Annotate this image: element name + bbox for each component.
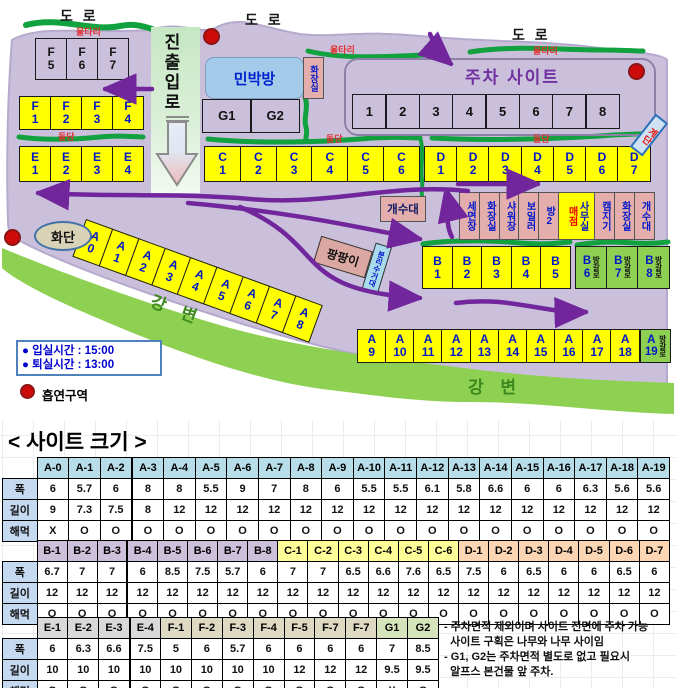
col-header-C-5: C-5	[398, 541, 428, 562]
check-in-out-legend: ● 입실시간 : 15:00 ● 퇴실시간 : 13:00	[16, 340, 162, 376]
site-A13: A13	[470, 329, 500, 363]
cell-G2-hammock: O	[408, 681, 439, 688]
bungalow-tag: 방갈로	[623, 256, 631, 279]
col-header-D-3: D-3	[519, 541, 549, 562]
cell-C-1-width: 7	[278, 562, 308, 583]
cell-A-9-hammock: O	[322, 521, 354, 542]
campsite-map: 진출입로 도 로 도 로 도 로 울타리 울타리 울타리 돌담 돌담 돌담 민박…	[0, 0, 676, 420]
row-label-길이: 길이	[3, 583, 38, 604]
cell-A-12-width: 6.1	[417, 479, 449, 500]
cell-A-19-width: 5.6	[638, 479, 670, 500]
facility-방2: 방2	[538, 192, 559, 240]
cell-F-3-width: 5.7	[222, 639, 253, 660]
site-A18: A18	[610, 329, 640, 363]
site-A9: A9	[357, 329, 387, 363]
col-header-A-5: A-5	[195, 458, 227, 479]
note-line: - 주차면적 제외이며 사이트 전면에 주차 가능	[444, 620, 676, 635]
col-header-B-7: B-7	[218, 541, 248, 562]
site-E4: E4	[112, 146, 144, 182]
cell-F-7-hammock: O	[315, 681, 346, 688]
cell-F-4-hammock: O	[253, 681, 284, 688]
facility-화장실: 화장실	[479, 192, 500, 240]
col-header-A-11: A-11	[385, 458, 417, 479]
cell-D-4-length: 12	[549, 583, 579, 604]
flowerbed-oval: 화단	[34, 221, 92, 251]
note-line: - G1, G2는 주차면적 별도로 없고 필요시	[444, 650, 676, 665]
cell-B-1-length: 12	[37, 583, 67, 604]
note-line: 사이트 구획은 나무와 나무 사이임	[444, 635, 676, 650]
cell-D-3-length: 12	[519, 583, 549, 604]
cell-B-8-length: 12	[248, 583, 278, 604]
fence-label-2: 울타리	[330, 43, 355, 56]
site-B4: B4	[511, 246, 542, 289]
cell-A-10-width: 5.5	[353, 479, 385, 500]
site-B1: B1	[422, 246, 453, 289]
cell-A-2-length: 7.5	[100, 500, 132, 521]
col-header-F-1: F-1	[161, 618, 192, 639]
fence-label-1: 울타리	[76, 25, 101, 38]
cell-F-3-hammock: O	[222, 681, 253, 688]
col-header-A-4: A-4	[164, 458, 196, 479]
cell-E-1-hammock: O	[37, 681, 68, 688]
cell-D-6-length: 12	[609, 583, 639, 604]
site-2: 2	[385, 94, 420, 129]
cell-E-4-length: 10	[130, 660, 161, 681]
cell-E-2-hammock: O	[68, 681, 99, 688]
col-header-C-2: C-2	[308, 541, 338, 562]
col-header-F-5: F-5	[284, 618, 315, 639]
cell-A-10-hammock: O	[353, 521, 385, 542]
wall-label-3: 돌담	[533, 132, 550, 145]
cell-E-4-hammock: O	[130, 681, 161, 688]
col-header-C-1: C-1	[278, 541, 308, 562]
cell-A-15-width: 6	[511, 479, 543, 500]
site-row-d: D1D2D3D4D5D6D7	[424, 146, 651, 182]
col-header-A-2: A-2	[100, 458, 132, 479]
col-header-F-3: F-3	[222, 618, 253, 639]
col-header-F-4: F-4	[253, 618, 284, 639]
col-header-A-15: A-15	[511, 458, 543, 479]
cell-A-8-hammock: O	[290, 521, 322, 542]
cell-F-5-hammock: O	[284, 681, 315, 688]
site-D2: D2	[456, 146, 490, 182]
cell-E-2-length: 10	[68, 660, 99, 681]
col-header-A-19: A-19	[638, 458, 670, 479]
col-header-A-3: A-3	[132, 458, 164, 479]
col-header-B-6: B-6	[188, 541, 218, 562]
row-label-길이: 길이	[3, 500, 38, 521]
site-G2: G2	[250, 99, 300, 133]
site-B5: B5	[540, 246, 571, 289]
col-header-B-5: B-5	[157, 541, 187, 562]
corner-cell	[3, 618, 38, 639]
smoking-area-dot	[20, 384, 35, 399]
cell-D-7-length: 12	[639, 583, 669, 604]
cell-A-19-hammock: O	[638, 521, 670, 542]
col-header-D-2: D-2	[489, 541, 519, 562]
cell-A-17-length: 12	[575, 500, 607, 521]
cell-A-11-hammock: O	[385, 521, 417, 542]
site-B2: B2	[452, 246, 483, 289]
site-3: 3	[419, 94, 454, 129]
col-header-A-1: A-1	[69, 458, 101, 479]
section-title: < 사이트 크기 >	[8, 426, 147, 456]
cell-B-3-width: 7	[97, 562, 127, 583]
row-label-해먹: 해먹	[3, 521, 38, 542]
cell-C-1-length: 12	[278, 583, 308, 604]
cell-A-6-hammock: O	[227, 521, 259, 542]
cell-E-3-width: 6.6	[99, 639, 130, 660]
col-header-E-1: E-1	[37, 618, 68, 639]
col-header-A-6: A-6	[227, 458, 259, 479]
col-header-C-4: C-4	[368, 541, 398, 562]
cell-A-9-length: 12	[322, 500, 354, 521]
cell-A-3-length: 8	[132, 500, 164, 521]
col-header-E-3: E-3	[99, 618, 130, 639]
cell-A-16-length: 12	[543, 500, 575, 521]
site-A14: A14	[498, 329, 528, 363]
site-C1: C1	[204, 146, 241, 182]
col-header-A-0: A-0	[37, 458, 69, 479]
cell-D-2-length: 12	[489, 583, 519, 604]
col-header-D-6: D-6	[609, 541, 639, 562]
cell-A-18-hammock: O	[606, 521, 638, 542]
cell-A-0-width: 6	[37, 479, 69, 500]
size-table-efg: E-1E-2E-3E-4F-1F-2F-3F-4F-5F-7F-7G1G2폭66…	[2, 617, 439, 688]
col-header-F-2: F-2	[191, 618, 222, 639]
cell-A-14-width: 6.6	[480, 479, 512, 500]
site-F4: F4	[112, 96, 144, 130]
cell-E-4-width: 7.5	[130, 639, 161, 660]
cell-C-4-width: 6.6	[368, 562, 398, 583]
cell-C-6-length: 12	[428, 583, 458, 604]
cell-A-14-length: 12	[480, 500, 512, 521]
cell-D-7-width: 6	[639, 562, 669, 583]
facility-세면장: 세면장	[459, 192, 480, 240]
parking-zone-title: 주차 사이트	[465, 63, 560, 88]
wall-label-1: 돌담	[58, 130, 75, 143]
cell-A-3-hammock: O	[132, 521, 164, 542]
cell-B-4-width: 6	[127, 562, 157, 583]
site-row-f1-f4: F1F2F3F4	[19, 96, 144, 130]
site-row-f5-f7: F5F6F7	[35, 38, 129, 80]
guesthouse-box: 민박방	[205, 57, 304, 99]
cell-B-5-length: 12	[157, 583, 187, 604]
cell-B-2-length: 12	[67, 583, 97, 604]
facility-개수대: 개수대	[634, 192, 655, 240]
col-header-D-5: D-5	[579, 541, 609, 562]
fence-label-3: 울타리	[533, 44, 558, 57]
bungalow-B8: B8방갈로	[637, 246, 670, 289]
cell-F-1-length: 10	[161, 660, 192, 681]
cell-F-2-width: 6	[191, 639, 222, 660]
cell-A-14-hammock: O	[480, 521, 512, 542]
site-D6: D6	[585, 146, 619, 182]
check-in-time: ● 입실시간 : 15:00	[22, 344, 156, 358]
cell-C-4-length: 12	[368, 583, 398, 604]
cell-F-7-hammock: O	[346, 681, 377, 688]
cell-D-2-width: 6	[489, 562, 519, 583]
col-header-B-8: B-8	[248, 541, 278, 562]
site-F1: F1	[19, 96, 51, 130]
site-C6: C6	[383, 146, 420, 182]
row-label-길이: 길이	[3, 660, 38, 681]
site-row-b1-b5: B1B2B3B4B5	[422, 246, 571, 289]
cell-F-7-width: 6	[346, 639, 377, 660]
bungalow-B6: B6방갈로	[575, 246, 608, 289]
col-header-B-2: B-2	[67, 541, 97, 562]
notes: - 주차면적 제외이며 사이트 전면에 주차 가능 사이트 구획은 나무와 나무…	[444, 620, 676, 680]
bungalow-row-b6-b8: B6방갈로B7방갈로B8방갈로	[575, 246, 670, 289]
cell-F-2-length: 10	[191, 660, 222, 681]
col-header-A-18: A-18	[606, 458, 638, 479]
site-row-e: E1E2E3E4	[19, 146, 144, 182]
cell-B-7-length: 12	[218, 583, 248, 604]
col-header-D-4: D-4	[549, 541, 579, 562]
bungalow-B7: B7방갈로	[606, 246, 639, 289]
cell-B-8-width: 6	[248, 562, 278, 583]
site-5: 5	[485, 94, 520, 129]
cell-D-3-width: 6.5	[519, 562, 549, 583]
site-1: 1	[352, 94, 387, 129]
cell-A-2-width: 6	[100, 479, 132, 500]
cell-A-5-hammock: O	[195, 521, 227, 542]
smoking-dot-1	[203, 28, 220, 45]
cell-A-4-hammock: O	[164, 521, 196, 542]
site-C3: C3	[276, 146, 313, 182]
cell-A-5-width: 5.5	[195, 479, 227, 500]
site-C4: C4	[311, 146, 348, 182]
cell-A-15-hammock: O	[511, 521, 543, 542]
site-6: 6	[519, 94, 554, 129]
size-table-a: A-0A-1A-2A-3A-4A-5A-6A-7A-8A-9A-10A-11A-…	[2, 457, 670, 542]
cell-F-5-width: 6	[284, 639, 315, 660]
col-header-B-1: B-1	[37, 541, 67, 562]
site-A11: A11	[413, 329, 443, 363]
cell-D-5-length: 12	[579, 583, 609, 604]
facility-캠지기: 캠지기	[594, 192, 615, 240]
col-header-A-16: A-16	[543, 458, 575, 479]
cell-D-1-length: 12	[459, 583, 489, 604]
cell-A-1-width: 5.7	[69, 479, 101, 500]
cell-A-1-length: 7.3	[69, 500, 101, 521]
site-G1: G1	[202, 99, 252, 133]
cell-E-1-width: 6	[37, 639, 68, 660]
col-header-C-3: C-3	[338, 541, 368, 562]
bungalow-tag: 방갈로	[659, 335, 667, 358]
site-F2: F2	[50, 96, 82, 130]
cell-C-3-length: 12	[338, 583, 368, 604]
cell-A-11-width: 5.5	[385, 479, 417, 500]
facility-화장실: 화장실	[614, 192, 635, 240]
site-F6: F6	[66, 38, 98, 80]
col-header-D-1: D-1	[459, 541, 489, 562]
site-C5: C5	[347, 146, 384, 182]
campsite-map-page: 진출입로 도 로 도 로 도 로 울타리 울타리 울타리 돌담 돌담 돌담 민박…	[0, 0, 676, 688]
cell-D-1-width: 7.5	[459, 562, 489, 583]
col-header-A-17: A-17	[575, 458, 607, 479]
site-E2: E2	[50, 146, 82, 182]
col-header-A-14: A-14	[480, 458, 512, 479]
size-table-bcd: B-1B-2B-3B-4B-5B-6B-7B-8C-1C-2C-3C-4C-5C…	[2, 540, 670, 625]
cell-F-4-length: 10	[253, 660, 284, 681]
site-E1: E1	[19, 146, 51, 182]
cell-B-5-width: 8.5	[157, 562, 187, 583]
col-header-C-6: C-6	[428, 541, 458, 562]
entrance-road-label: 진출입로	[162, 33, 179, 113]
col-header-G2: G2	[408, 618, 439, 639]
cell-D-5-width: 6	[579, 562, 609, 583]
site-8: 8	[585, 94, 620, 129]
cell-A-17-hammock: O	[575, 521, 607, 542]
facility-보일러: 보일러	[518, 192, 539, 240]
cell-A-19-length: 12	[638, 500, 670, 521]
col-header-A-8: A-8	[290, 458, 322, 479]
cell-A-5-length: 12	[195, 500, 227, 521]
site-7: 7	[552, 94, 587, 129]
cell-A-13-hammock: O	[448, 521, 480, 542]
col-header-A-12: A-12	[417, 458, 449, 479]
cell-B-1-width: 6.7	[37, 562, 67, 583]
cell-A-12-hammock: O	[417, 521, 449, 542]
toilet-box-top: 화장실	[303, 57, 324, 99]
site-F3: F3	[81, 96, 113, 130]
cell-G2-width: 8.5	[408, 639, 439, 660]
cell-C-2-length: 12	[308, 583, 338, 604]
bungalow-tag: 방갈로	[655, 256, 663, 279]
col-header-F-7: F-7	[346, 618, 377, 639]
col-header-G1: G1	[377, 618, 408, 639]
cell-B-3-length: 12	[97, 583, 127, 604]
site-F5: F5	[35, 38, 67, 80]
cell-A-13-length: 12	[448, 500, 480, 521]
cell-A-9-width: 6	[322, 479, 354, 500]
wall-label-2: 돌담	[326, 132, 343, 145]
site-A15: A15	[526, 329, 556, 363]
cell-B-4-length: 12	[127, 583, 157, 604]
cell-F-7-length: 12	[346, 660, 377, 681]
cell-F-7-width: 6	[315, 639, 346, 660]
road-label-2: 도 로	[245, 10, 284, 30]
cell-A-4-length: 12	[164, 500, 196, 521]
cell-A-17-width: 6.3	[575, 479, 607, 500]
col-header-B-4: B-4	[127, 541, 157, 562]
site-row-c: C1C2C3C4C5C6	[204, 146, 420, 182]
cell-A-15-length: 12	[511, 500, 543, 521]
cell-B-2-width: 7	[67, 562, 97, 583]
site-D3: D3	[488, 146, 522, 182]
cell-C-5-length: 12	[398, 583, 428, 604]
facility-strip: 세면장화장실샤워장보일러방2매점사무실캠지기화장실개수대	[459, 192, 655, 240]
row-label-폭: 폭	[3, 562, 38, 583]
cell-A-2-hammock: O	[100, 521, 132, 542]
smoking-dot-2	[628, 63, 645, 80]
note-line: 알프스 본건물 앞 주차.	[444, 665, 676, 680]
cell-A-7-hammock: O	[258, 521, 290, 542]
col-header-E-4: E-4	[130, 618, 161, 639]
cell-A-16-hammock: O	[543, 521, 575, 542]
site-size-section: < 사이트 크기 > A-0A-1A-2A-3A-4A-5A-6A-7A-8A-…	[0, 420, 676, 688]
parking-slot-row: 12345678	[352, 94, 620, 129]
site-E3: E3	[81, 146, 113, 182]
site-D5: D5	[553, 146, 587, 182]
cell-A-7-length: 12	[258, 500, 290, 521]
cell-F-4-width: 6	[253, 639, 284, 660]
bungalow-tag: 방갈로	[592, 256, 600, 279]
check-out-time: ● 퇴실시간 : 13:00	[22, 358, 156, 372]
cell-A-18-length: 12	[606, 500, 638, 521]
cell-F-1-hammock: O	[161, 681, 192, 688]
bungalow-A19: A19방갈로	[640, 329, 671, 363]
site-row-a9-a18: A9A10A11A12A13A14A15A16A17A18	[357, 329, 640, 363]
road-label-1: 도 로	[60, 6, 99, 26]
cell-E-1-length: 10	[37, 660, 68, 681]
site-A17: A17	[582, 329, 612, 363]
cell-C-3-width: 6.5	[338, 562, 368, 583]
col-header-B-3: B-3	[97, 541, 127, 562]
cell-F-2-hammock: O	[191, 681, 222, 688]
cell-A-16-width: 6	[543, 479, 575, 500]
riverside-label-2: 강 변	[468, 373, 522, 398]
cell-A-0-hammock: X	[37, 521, 69, 542]
cell-A-13-width: 5.8	[448, 479, 480, 500]
cell-A-10-length: 12	[353, 500, 385, 521]
cell-D-4-width: 6	[549, 562, 579, 583]
road-label-3: 도 로	[512, 25, 551, 45]
cell-B-6-width: 7.5	[188, 562, 218, 583]
cell-F-7-length: 12	[315, 660, 346, 681]
col-header-A-7: A-7	[258, 458, 290, 479]
col-header-E-2: E-2	[68, 618, 99, 639]
site-B3: B3	[481, 246, 512, 289]
cell-A-8-width: 8	[290, 479, 322, 500]
cell-E-2-width: 6.3	[68, 639, 99, 660]
cell-G1-width: 7	[377, 639, 408, 660]
site-A10: A10	[385, 329, 415, 363]
cell-A-12-length: 12	[417, 500, 449, 521]
cell-A-6-length: 12	[227, 500, 259, 521]
bungalow-cell-a19: A19방갈로	[640, 329, 671, 363]
cell-F-3-length: 10	[222, 660, 253, 681]
cell-C-6-width: 6.5	[428, 562, 458, 583]
cell-A-1-hammock: O	[69, 521, 101, 542]
site-C2: C2	[240, 146, 277, 182]
cell-D-6-width: 6.5	[609, 562, 639, 583]
col-header-F-7: F-7	[315, 618, 346, 639]
col-header-A-9: A-9	[322, 458, 354, 479]
col-header-A-10: A-10	[353, 458, 385, 479]
corner-cell	[3, 458, 38, 479]
smoking-area-label: 흡연구역	[42, 385, 88, 404]
cell-A-4-width: 8	[164, 479, 196, 500]
site-row-g: G1G2	[202, 99, 300, 133]
cell-A-18-width: 5.6	[606, 479, 638, 500]
cell-C-2-width: 7	[308, 562, 338, 583]
col-header-A-13: A-13	[448, 458, 480, 479]
row-label-폭: 폭	[3, 479, 38, 500]
row-label-폭: 폭	[3, 639, 38, 660]
cell-A-8-length: 12	[290, 500, 322, 521]
row-label-해먹: 해먹	[3, 681, 38, 688]
cell-F-1-width: 5	[161, 639, 192, 660]
cell-A-7-width: 7	[258, 479, 290, 500]
sink-box: 개수대	[380, 196, 426, 222]
site-F7: F7	[97, 38, 129, 80]
cell-G1-length: 9.5	[377, 660, 408, 681]
cell-F-5-length: 12	[284, 660, 315, 681]
site-D1: D1	[424, 146, 458, 182]
cell-A-3-width: 8	[132, 479, 164, 500]
